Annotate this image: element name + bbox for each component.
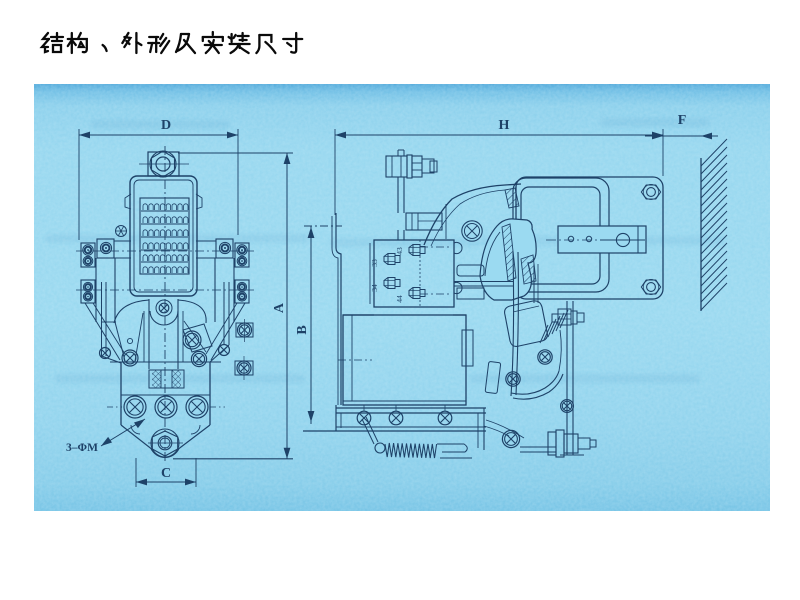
svg-text:34: 34 bbox=[370, 284, 379, 292]
svg-text:3–ΦM: 3–ΦM bbox=[66, 442, 98, 454]
svg-text:A: A bbox=[272, 302, 287, 313]
svg-text:C: C bbox=[161, 466, 171, 481]
svg-text:D: D bbox=[161, 118, 171, 133]
svg-text:F: F bbox=[678, 113, 687, 128]
svg-text:H: H bbox=[499, 118, 510, 133]
svg-text:33: 33 bbox=[370, 259, 379, 267]
svg-text:B: B bbox=[295, 325, 310, 334]
svg-text:44: 44 bbox=[395, 295, 404, 303]
svg-text:43: 43 bbox=[395, 247, 404, 255]
